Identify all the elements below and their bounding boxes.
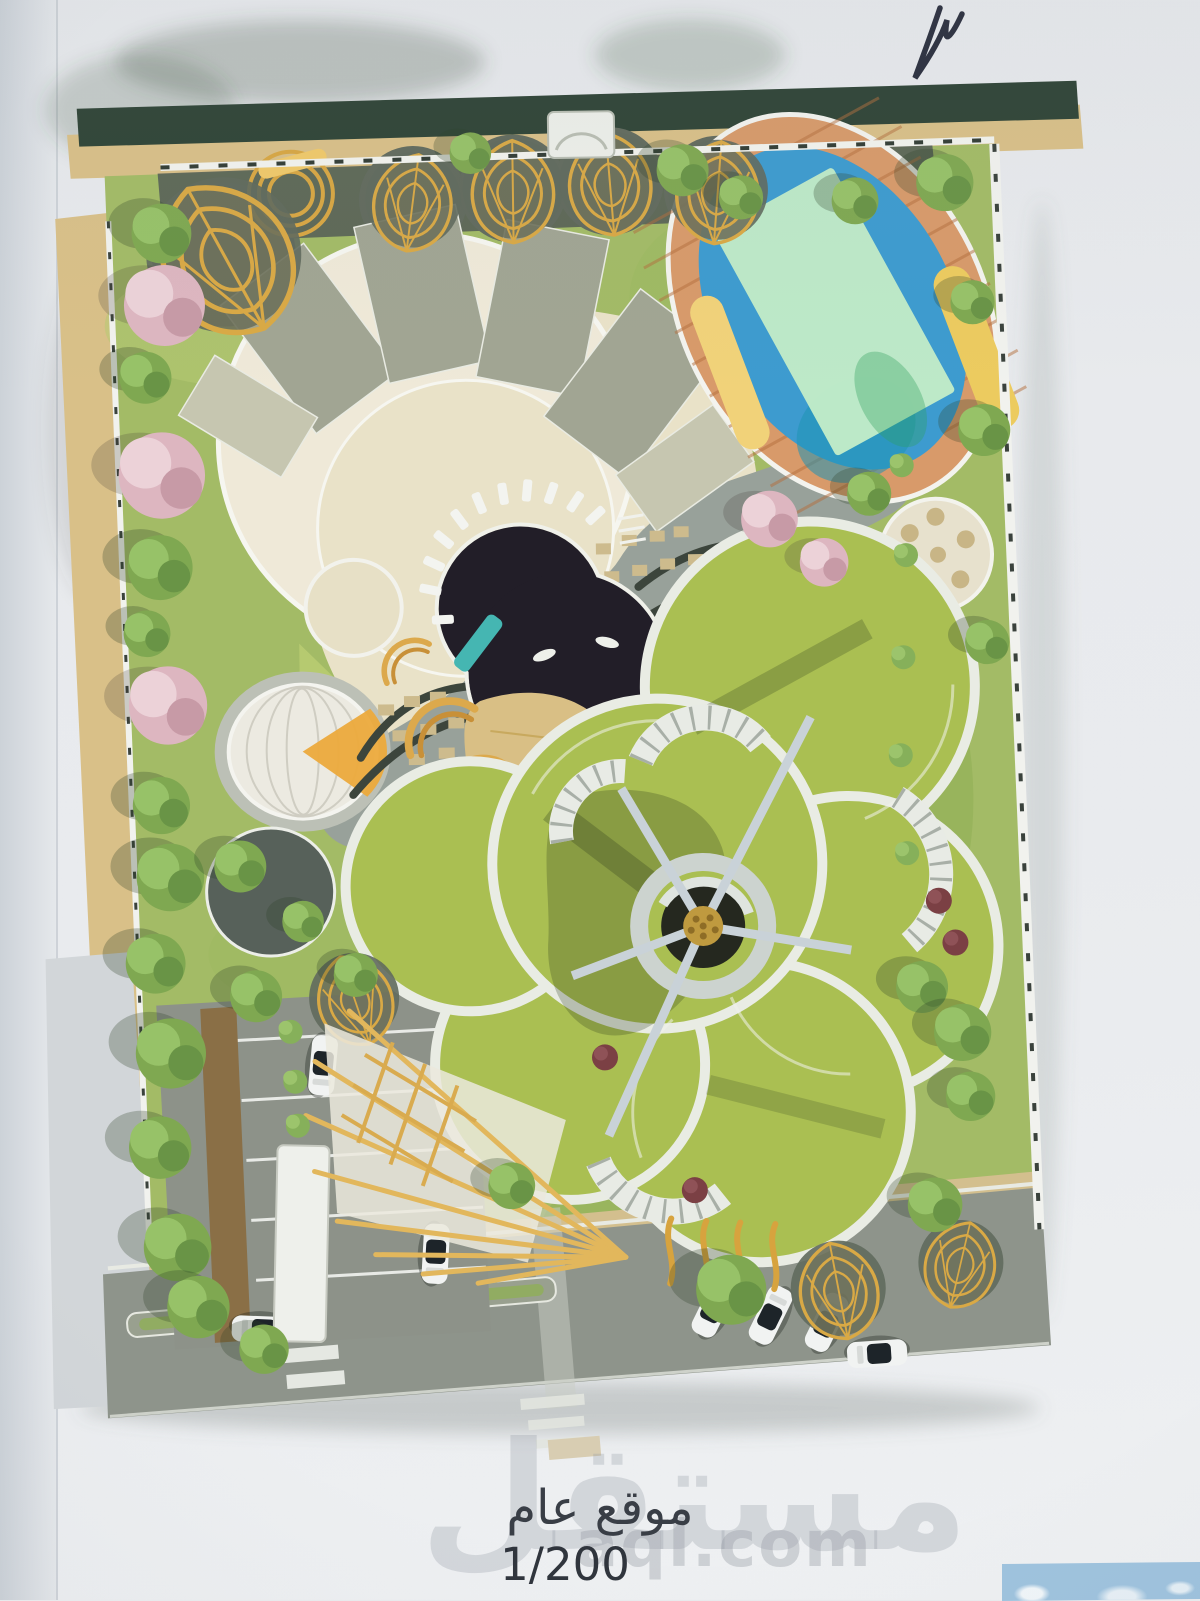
site-plan <box>33 52 1101 1467</box>
site-plan-rendering <box>0 0 1200 1600</box>
photo-fragment <box>1002 1562 1200 1601</box>
caption-scale: 1/200 <box>430 1538 700 1591</box>
pen-mark <box>915 8 962 78</box>
caption-title: موقع عام <box>430 1480 770 1536</box>
